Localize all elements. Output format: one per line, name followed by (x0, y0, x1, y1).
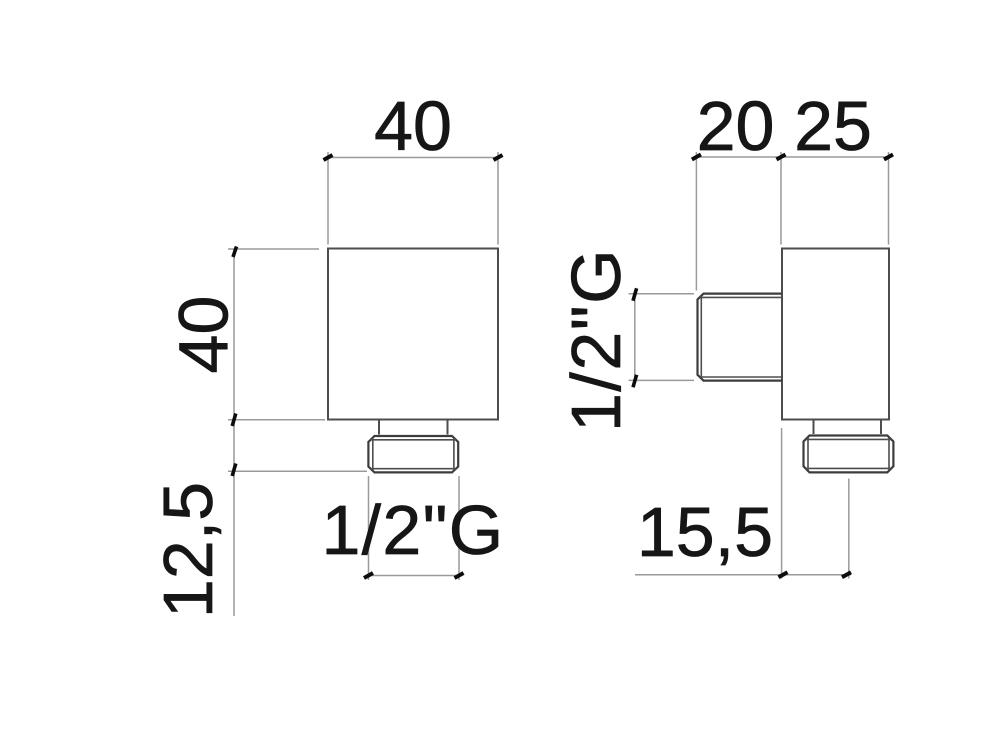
svg-text:40: 40 (165, 296, 243, 374)
svg-text:1/2"G: 1/2"G (557, 248, 635, 432)
svg-text:20: 20 (697, 87, 775, 165)
svg-text:25: 25 (794, 87, 872, 165)
svg-text:15,5: 15,5 (637, 493, 773, 571)
svg-text:1/2"G: 1/2"G (321, 491, 504, 569)
svg-text:40: 40 (374, 87, 452, 165)
svg-text:12,5: 12,5 (149, 482, 227, 618)
